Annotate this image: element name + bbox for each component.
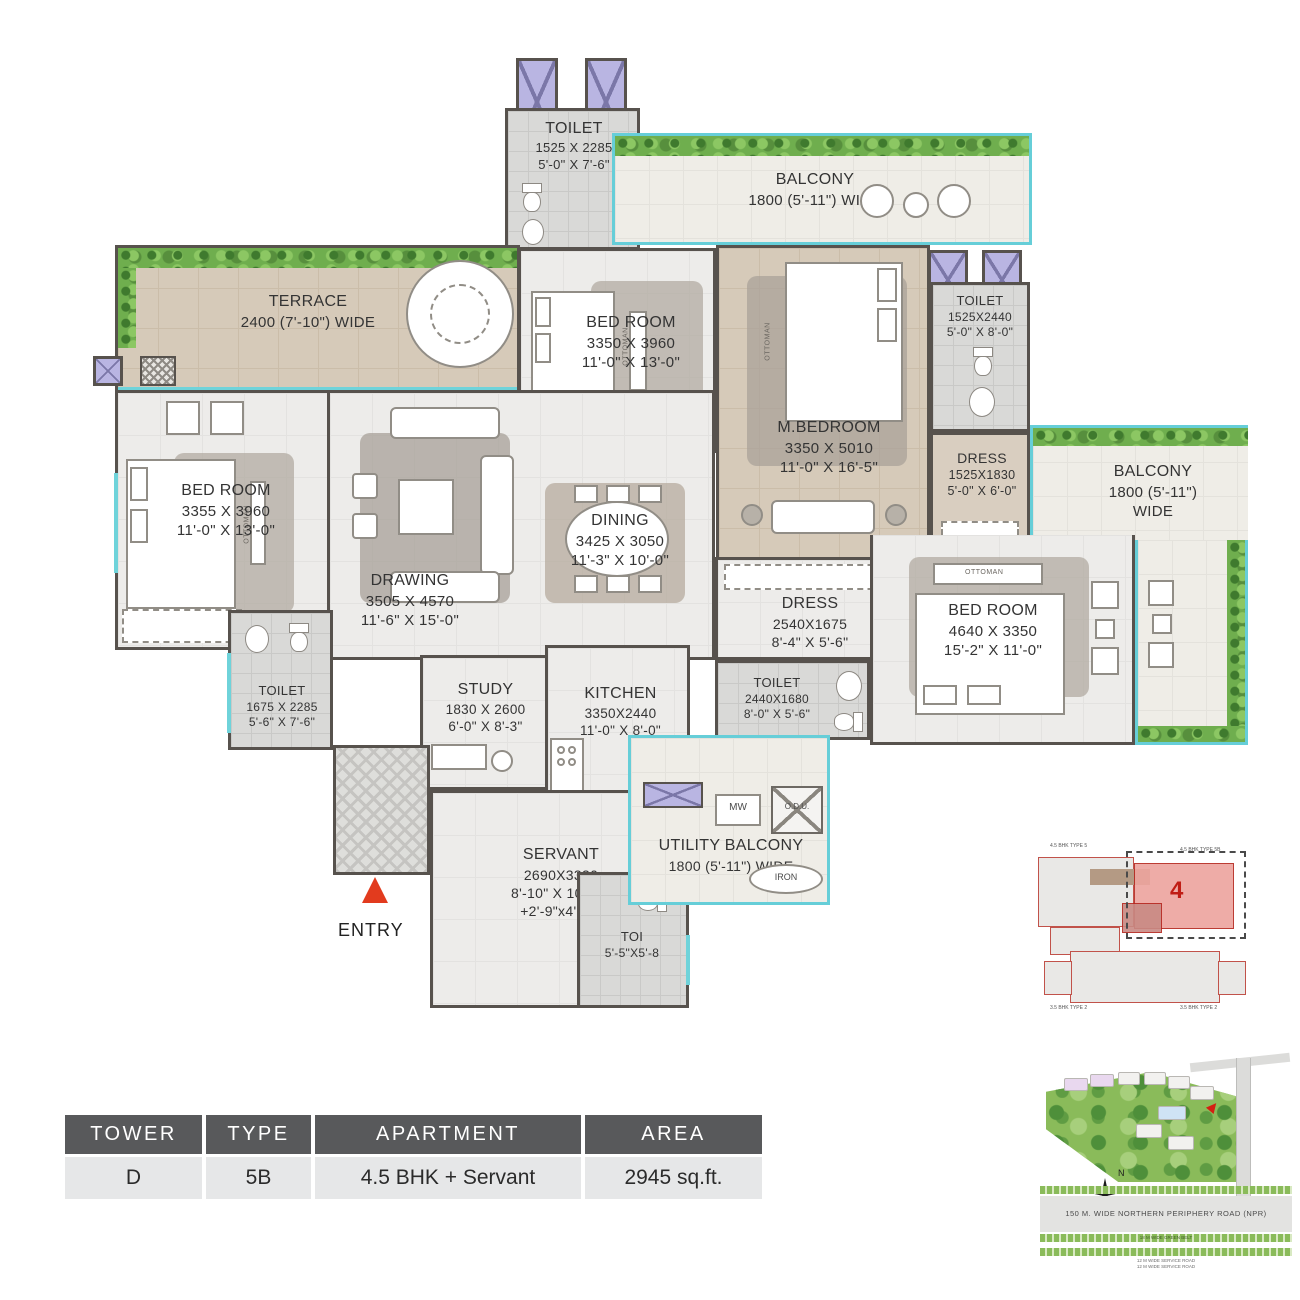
balcony-chair-icon [1148, 642, 1174, 668]
pillow-icon [535, 333, 551, 363]
keyplan-block [1038, 857, 1134, 927]
ottoman-label: OTTOMAN [965, 569, 1003, 576]
site-plan: N 150 M. WIDE NORTHERN PERIPHERY ROAD (N… [1040, 1058, 1292, 1270]
header-area: AREA [585, 1115, 762, 1154]
site-building [1168, 1076, 1190, 1089]
site-building [1064, 1078, 1088, 1091]
green-belt-strip [1040, 1248, 1292, 1256]
shaft-icon [93, 356, 123, 386]
balcony-table-icon [1152, 614, 1172, 634]
toilet-wc-icon [289, 623, 309, 653]
dining-chair-icon [574, 575, 598, 593]
service-road-label: 12 M WIDE SERVICE ROAD [1040, 1258, 1292, 1263]
washbasin-icon [522, 219, 544, 245]
sofa-icon [480, 455, 514, 575]
hob-burner-icon [568, 746, 576, 754]
npr-road-band: 150 M. WIDE NORTHERN PERIPHERY ROAD (NPR… [1040, 1196, 1292, 1232]
balcony-chair-icon [937, 184, 971, 218]
shaft-icon [643, 782, 703, 808]
green-belt-label: 18 M WIDE GREEN BELT [1040, 1235, 1292, 1240]
room-drawing-dining: DRAWING 3505 X 4570 11'-6" X 15'-0" DINI… [330, 390, 715, 660]
balcony-chair-icon [860, 184, 894, 218]
entry-foyer [333, 745, 430, 875]
planter-icon [1227, 540, 1245, 742]
dining-chair-icon [606, 575, 630, 593]
round-table-icon [430, 284, 490, 344]
value-type: 5B [206, 1157, 311, 1199]
room-balcony-right: BALCONY 1800 (5'-11") WIDE [1030, 425, 1248, 543]
desk-icon [431, 744, 487, 770]
room-utility-balcony: UTILITY BALCONY 1800 (5'-11") WIDE MW O.… [628, 735, 830, 905]
keyplan-block [1218, 961, 1246, 995]
chair-icon [1091, 581, 1119, 609]
room-toilet-left: TOILET 1675 X 2285 5'-6" X 7'-6" [228, 610, 333, 750]
balcony-chair-icon [1148, 580, 1174, 606]
side-table-icon [885, 504, 907, 526]
washbasin-icon [969, 387, 995, 417]
sofa-icon [390, 407, 500, 439]
wardrobe-icon [724, 564, 894, 590]
dining-chair-icon [638, 575, 662, 593]
washbasin-icon [245, 625, 269, 653]
toilet-wc-icon [973, 347, 993, 377]
room-bedroom-right: OTTOMAN BED ROOM 4640 X 3350 15'-2" X 11… [870, 535, 1135, 745]
side-table-icon [1095, 619, 1115, 639]
sofa-icon [771, 500, 875, 534]
site-building [1190, 1086, 1214, 1100]
header-tower: TOWER [65, 1115, 202, 1154]
room-toilet-center: TOILET 2440X1680 8'-0" X 5'-6" [715, 660, 870, 740]
pillow-icon [877, 268, 897, 302]
site-building [1168, 1136, 1194, 1150]
planter-icon [615, 136, 1029, 156]
value-area: 2945 sq.ft. [585, 1157, 762, 1199]
header-type: TYPE [206, 1115, 311, 1154]
duct-icon [140, 356, 176, 386]
summary-table-row: D 5B 4.5 BHK + Servant 2945 sq.ft. [65, 1157, 762, 1199]
armchair-icon [352, 473, 378, 499]
coffee-table-icon [398, 479, 454, 535]
pillow-icon [535, 297, 551, 327]
ottoman-label: OTTOMAN [765, 322, 772, 360]
service-road-label: 12 M WIDE SERVICE ROAD [1040, 1264, 1292, 1269]
keyplan-block [1070, 951, 1220, 1003]
toilet-wc-icon [522, 183, 542, 213]
entry-arrow-icon [362, 877, 388, 903]
planter-icon [1033, 428, 1248, 446]
dining-chair-icon [574, 485, 598, 503]
armchair-icon [352, 513, 378, 539]
room-balcony-top: BALCONY 1800 (5'-11") WIDE [612, 133, 1032, 245]
room-study: STUDY 1830 X 2600 6'-0" X 8'-3" [420, 655, 545, 790]
odu-label: O.D.U. [771, 802, 823, 811]
washbasin-icon [836, 671, 862, 701]
floor-plan-page: TOILET 1525 X 2285 5'-0" X 7'-6" BALCONY… [0, 0, 1300, 1300]
keyplan-dashed-outline [1126, 851, 1246, 939]
pillow-icon [877, 308, 897, 342]
wardrobe-icon [122, 609, 242, 643]
pillow-icon [923, 685, 957, 705]
pillow-icon [967, 685, 1001, 705]
compass-n-label: N [1118, 1168, 1125, 1178]
summary-table-header: TOWER TYPE APARTMENT AREA [65, 1115, 762, 1154]
keyplan-block [1044, 961, 1072, 995]
summary-table: TOWER TYPE APARTMENT AREA D 5B 4.5 BHK +… [65, 1115, 762, 1199]
dining-chair-icon [638, 485, 662, 503]
entry-label: ENTRY [338, 920, 404, 941]
desk-chair-icon [491, 750, 513, 772]
site-building [1144, 1072, 1166, 1085]
window-strip [114, 473, 118, 573]
key-plan: 4.5 BHK TYPE 5 4.5 BHK TYPE 5B 4 3.5 BHK… [1030, 843, 1275, 1013]
value-apartment: 4.5 BHK + Servant [315, 1157, 581, 1199]
hob-burner-icon [568, 758, 576, 766]
toilet-wc-icon [833, 712, 863, 732]
iron-label: IRON [749, 872, 823, 882]
hob-burner-icon [557, 758, 565, 766]
room-balcony-right-leg [1135, 540, 1248, 745]
room-master-bedroom: OTTOMAN M.BEDROOM 3350 X 5010 11'-0" X 1… [716, 245, 930, 560]
site-building [1136, 1124, 1162, 1138]
chair-icon [1091, 647, 1119, 675]
window-strip [686, 935, 690, 985]
header-apartment: APARTMENT [315, 1115, 581, 1154]
planter-icon [118, 268, 136, 348]
room-toilet-master: TOILET 1525X2440 5'-0" X 8'-0" [930, 282, 1030, 432]
site-building [1158, 1106, 1186, 1120]
planter-icon [1138, 726, 1245, 742]
value-tower: D [65, 1157, 202, 1199]
window-strip [227, 653, 231, 733]
balcony-table-icon [903, 192, 929, 218]
side-table-icon [741, 504, 763, 526]
npr-road-label: 150 M. WIDE NORTHERN PERIPHERY ROAD (NPR… [1040, 1209, 1292, 1218]
site-building [1090, 1074, 1114, 1087]
site-building [1118, 1072, 1140, 1085]
chair-icon [210, 401, 244, 435]
chair-icon [166, 401, 200, 435]
dining-chair-icon [606, 485, 630, 503]
green-belt-strip [1040, 1186, 1292, 1194]
hob-burner-icon [557, 746, 565, 754]
mw-label: MW [715, 802, 761, 813]
